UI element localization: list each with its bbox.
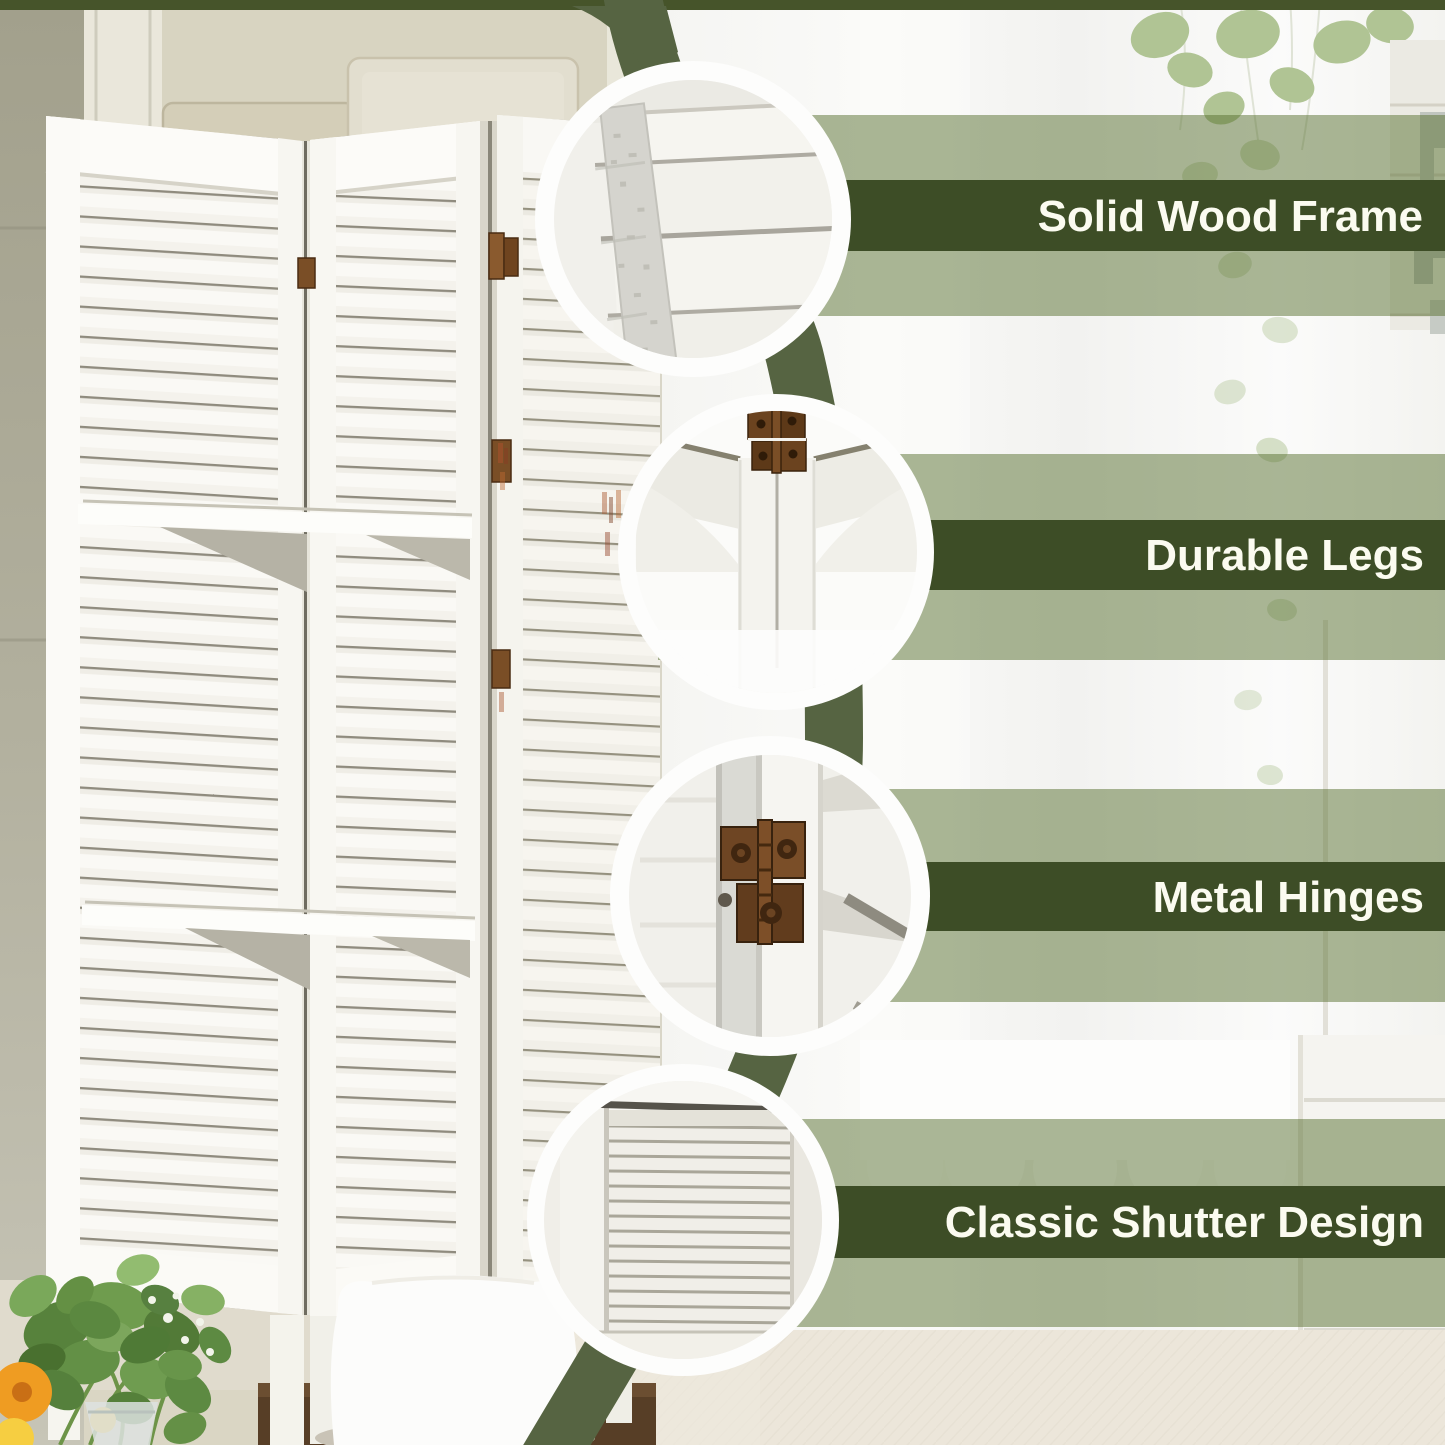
svg-text:Metal Hinges: Metal Hinges: [1153, 873, 1424, 922]
svg-text:Solid Wood Frame: Solid Wood Frame: [1038, 192, 1423, 241]
svg-text:Classic Shutter Design: Classic Shutter Design: [945, 1198, 1424, 1247]
svg-text:Durable Legs: Durable Legs: [1145, 531, 1424, 580]
